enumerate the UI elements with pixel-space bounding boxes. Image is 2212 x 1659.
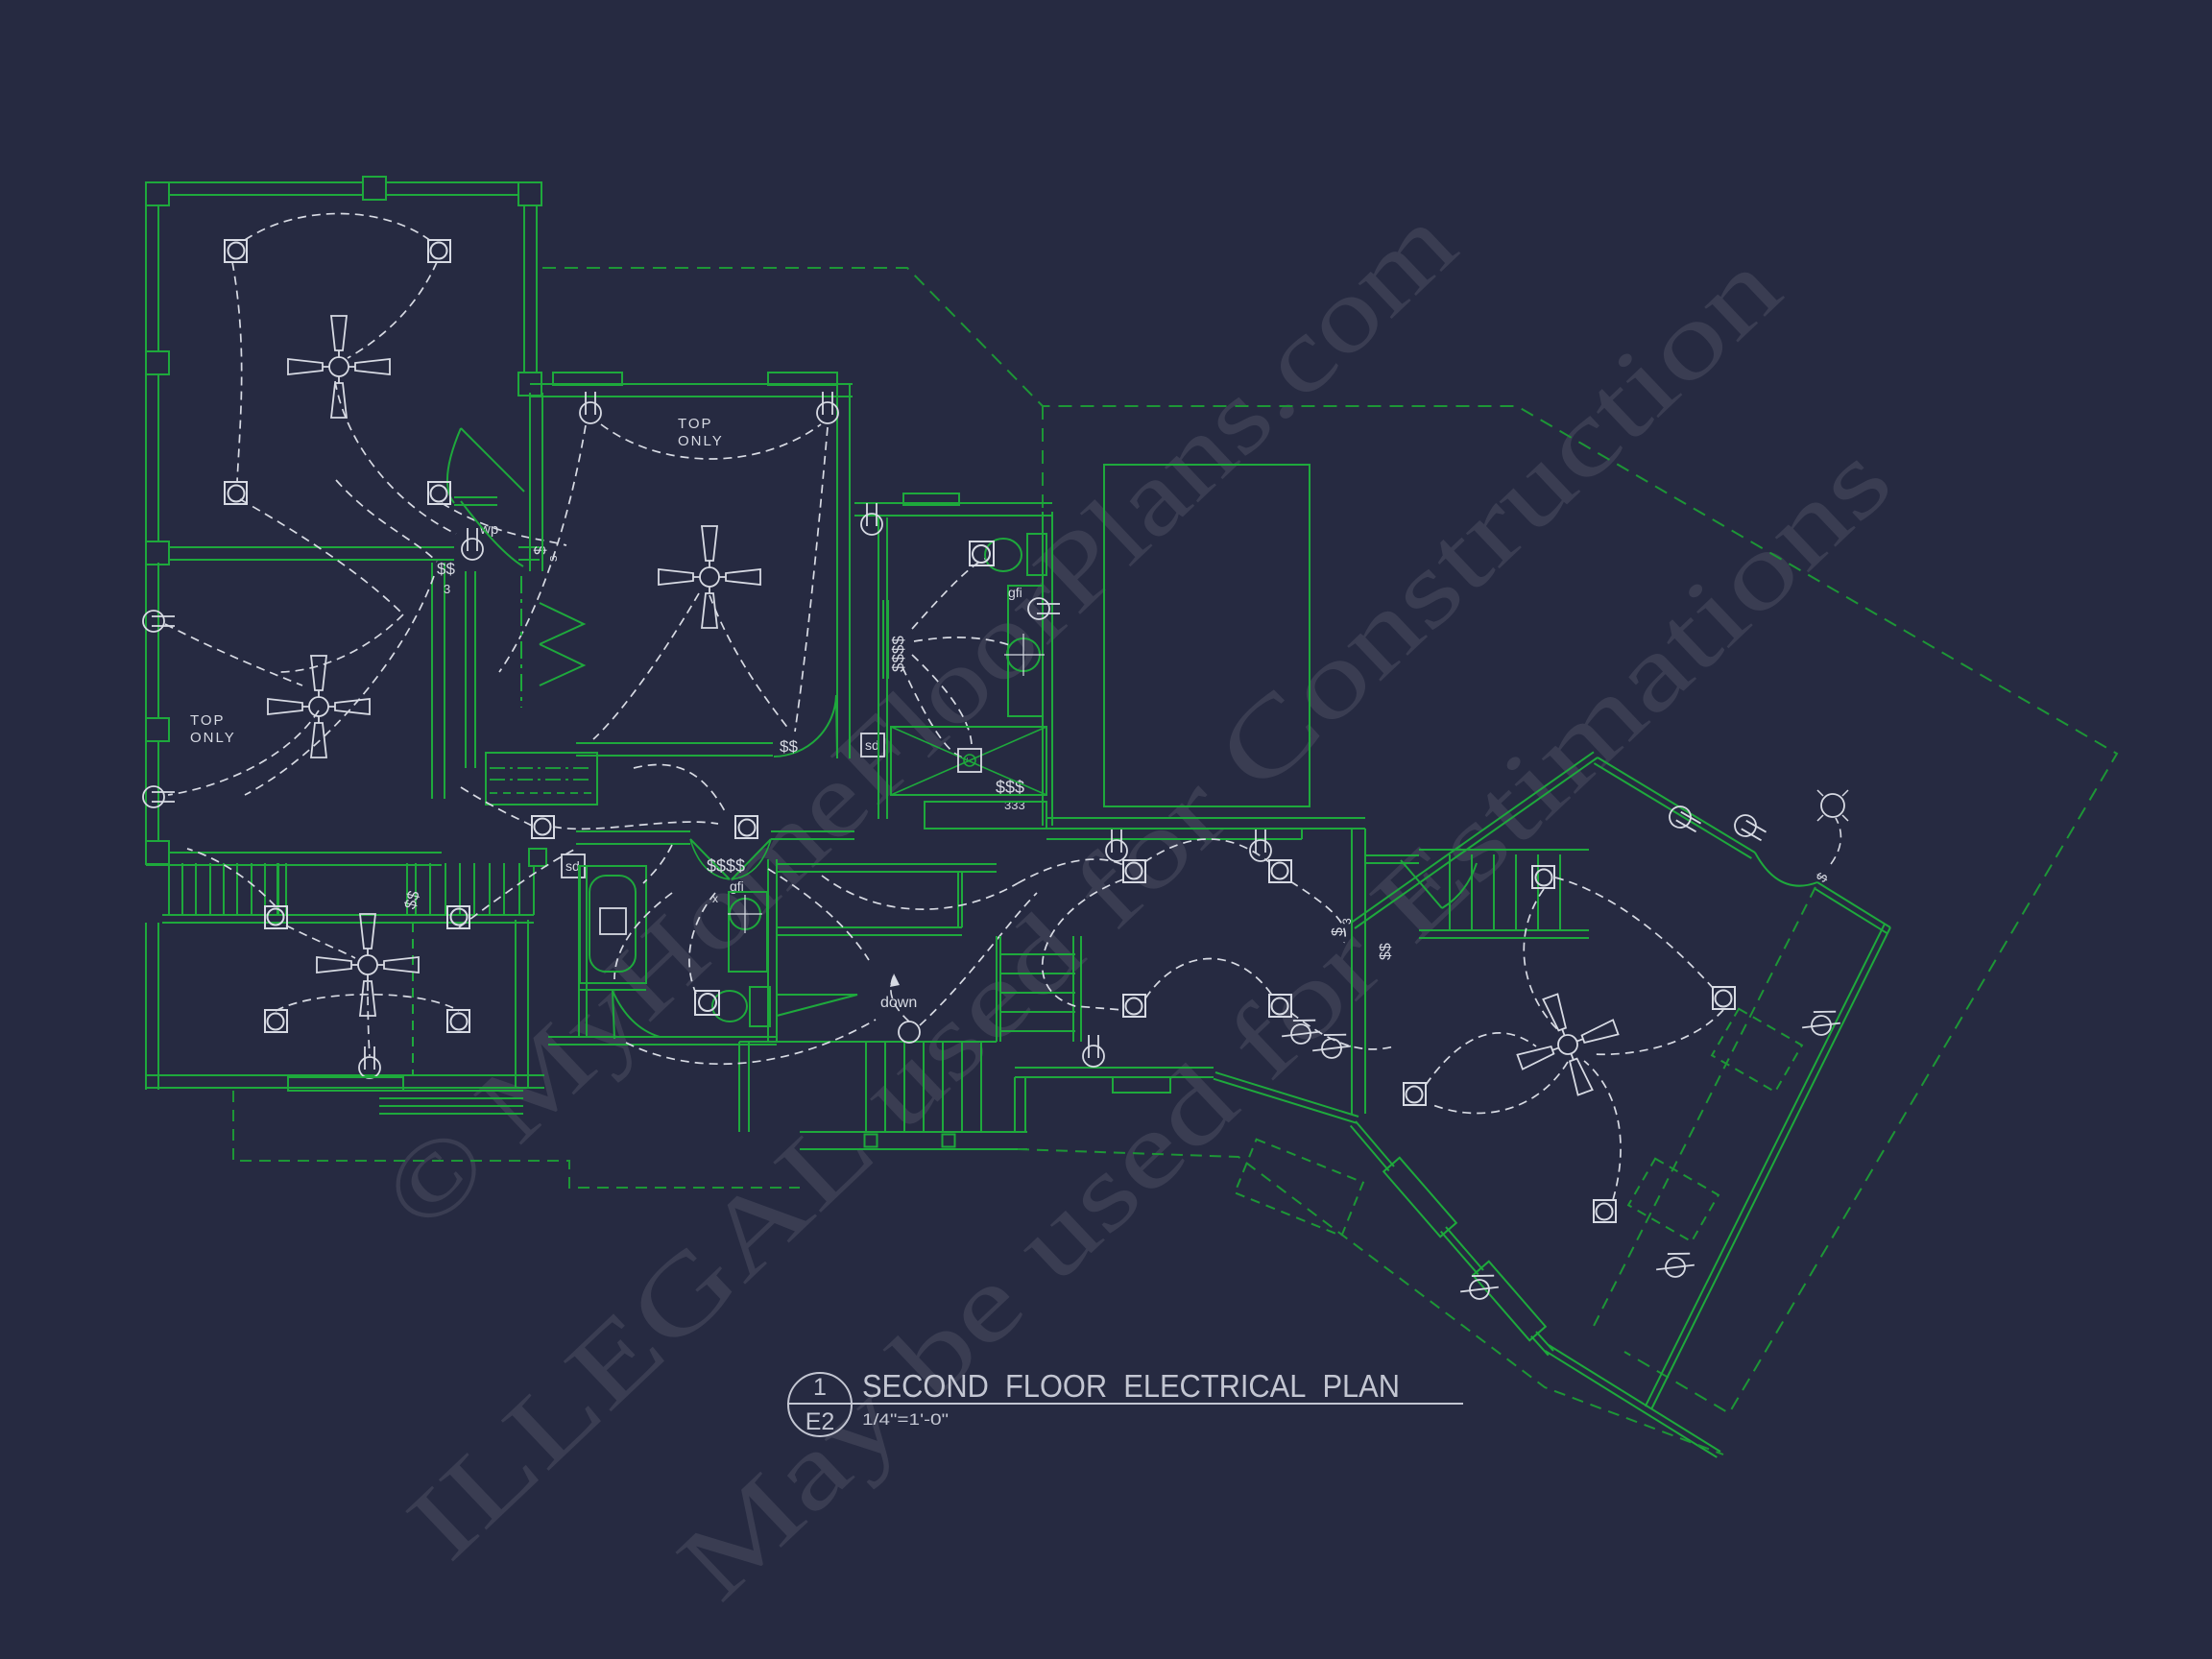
svg-text:$$$$: $$$$ xyxy=(889,636,907,672)
svg-text:ONLY: ONLY xyxy=(678,433,724,449)
svg-text:TOP: TOP xyxy=(678,416,713,432)
svg-text:3: 3 xyxy=(444,582,450,596)
svg-text:333: 333 xyxy=(1004,798,1025,812)
svg-text:1/4"=1'-0": 1/4"=1'-0" xyxy=(862,1410,949,1429)
svg-text:ONLY: ONLY xyxy=(190,730,236,746)
svg-text:$: $ xyxy=(1330,927,1346,936)
svg-text:down: down xyxy=(880,995,917,1011)
svg-text:$$: $$ xyxy=(437,560,455,578)
svg-text:SECOND FLOOR ELECTRICAL PLA: SECOND FLOOR ELECTRICAL PLAN xyxy=(862,1368,1400,1404)
svg-text:sd: sd xyxy=(565,858,580,874)
svg-text:TOP: TOP xyxy=(190,712,226,729)
svg-text:$$$$: $$$$ xyxy=(707,856,745,876)
svg-text:$: $ xyxy=(531,545,549,555)
svg-text:1: 1 xyxy=(813,1374,827,1401)
svg-text:$$: $$ xyxy=(1378,943,1394,960)
svg-text:gfi: gfi xyxy=(1008,585,1022,600)
svg-text:sd: sd xyxy=(865,737,879,753)
svg-text:$$: $$ xyxy=(780,737,798,756)
svg-text:E2: E2 xyxy=(805,1408,835,1435)
